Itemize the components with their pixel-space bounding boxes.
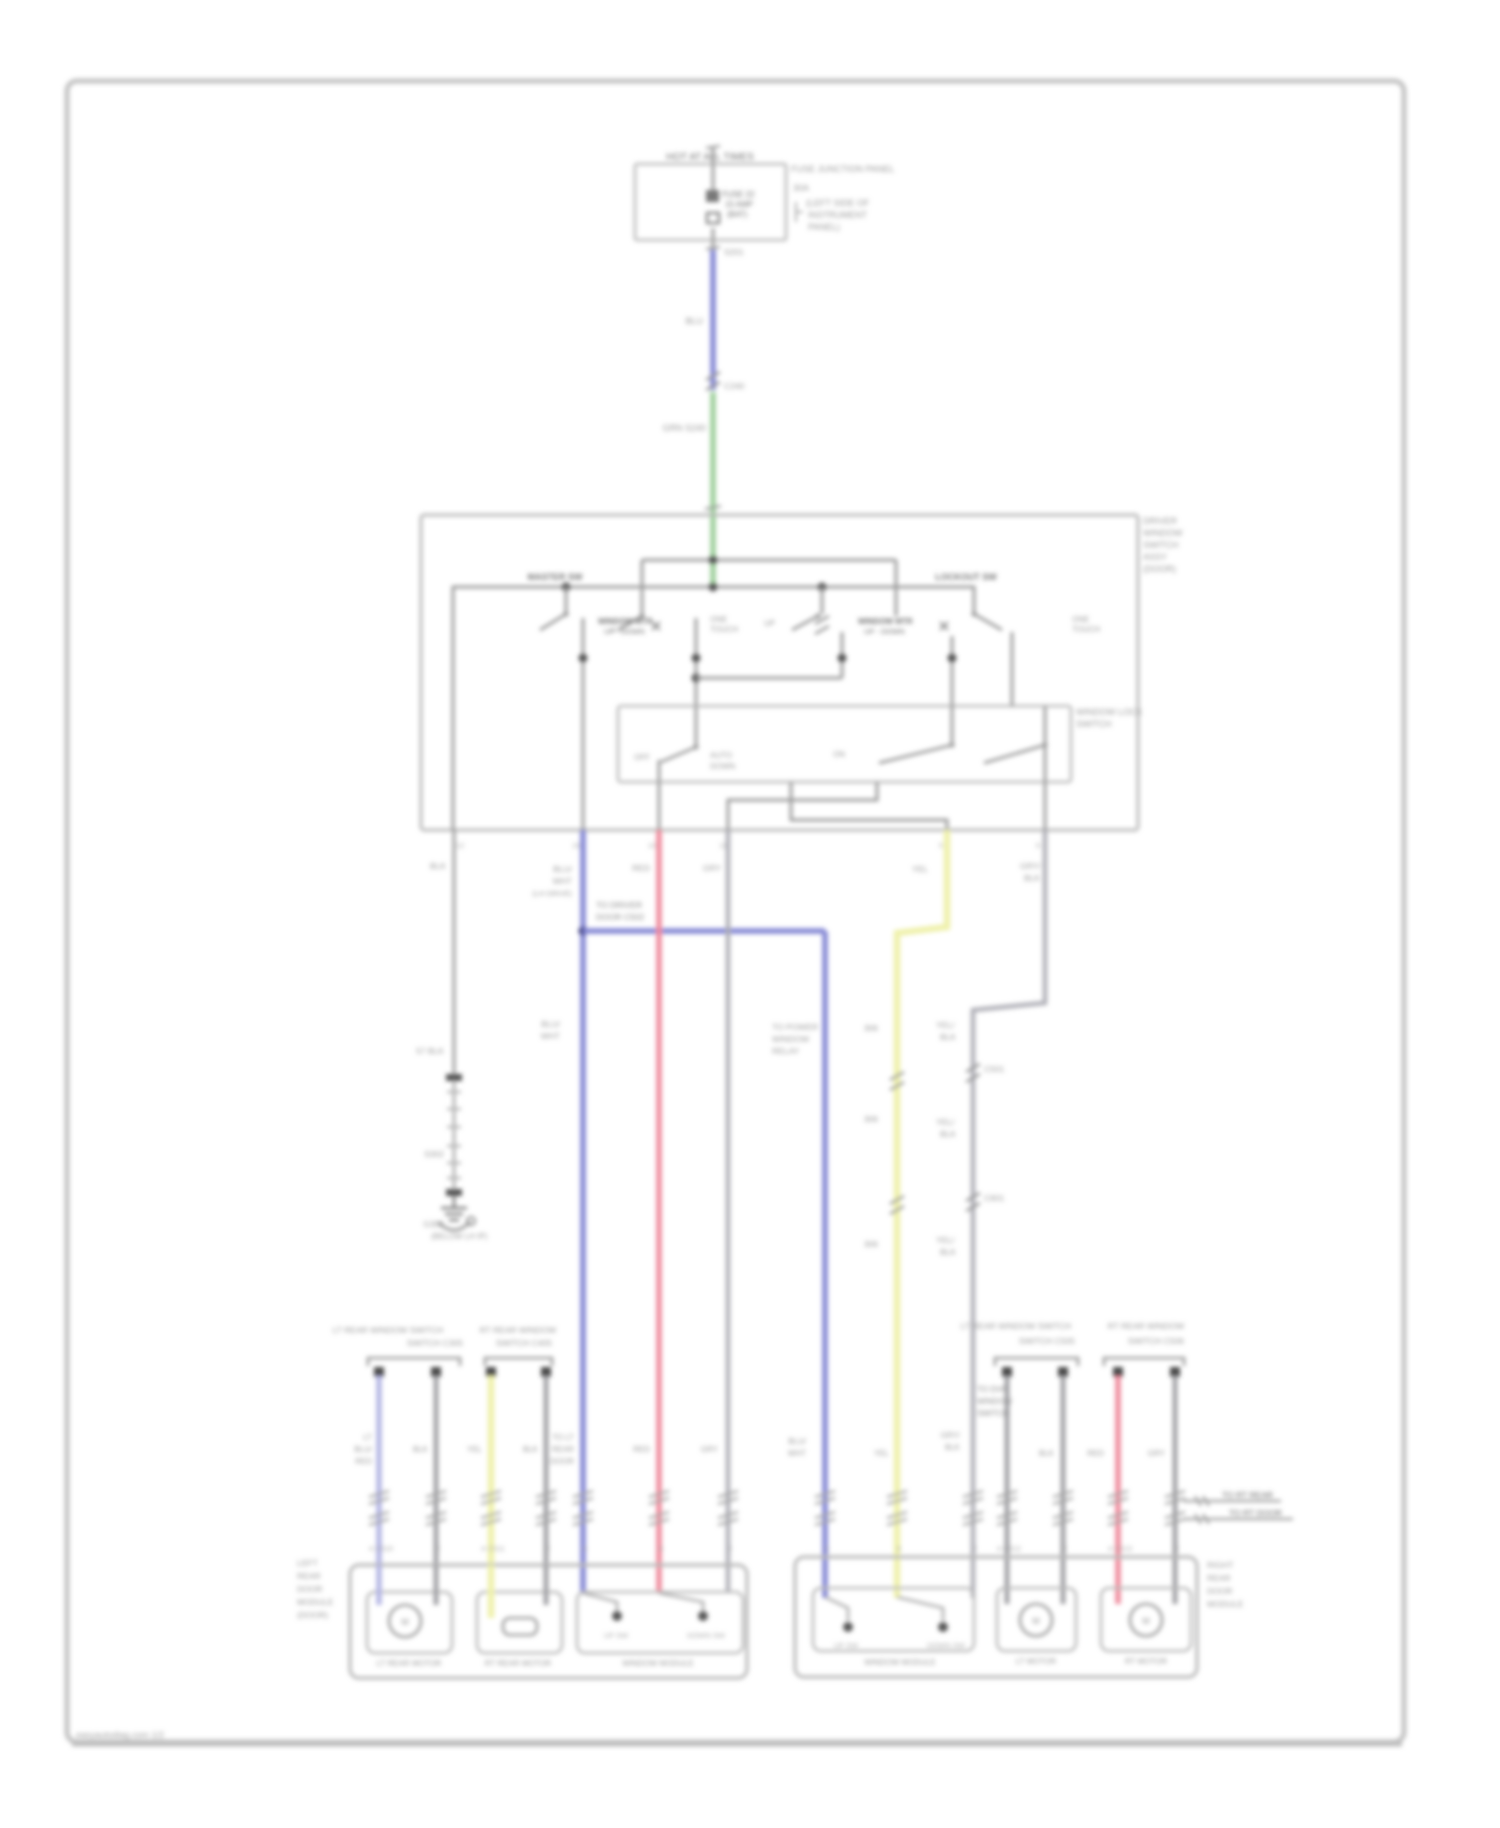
svg-text:WINDOW MODULE: WINDOW MODULE bbox=[864, 1658, 936, 1667]
svg-text:TO LT: TO LT bbox=[552, 1433, 574, 1442]
svg-text:RT REAR WINDOW: RT REAR WINDOW bbox=[480, 1325, 557, 1335]
svg-text:YEL: YEL bbox=[467, 1445, 483, 1454]
svg-text:DRIVER: DRIVER bbox=[1143, 516, 1178, 526]
svg-text:FUSE JUNCTION PANEL: FUSE JUNCTION PANEL bbox=[791, 164, 894, 174]
svg-text:LT: LT bbox=[363, 1433, 372, 1442]
svg-text:6: 6 bbox=[825, 1544, 829, 1553]
svg-text:TO DRIVER: TO DRIVER bbox=[596, 900, 642, 910]
svg-text:M: M bbox=[401, 1617, 409, 1627]
svg-text:TOUCH: TOUCH bbox=[710, 625, 739, 634]
svg-text:YEL: YEL bbox=[912, 864, 928, 874]
svg-text:M: M bbox=[1032, 1616, 1040, 1626]
svg-text:BLK: BLK bbox=[1039, 1449, 1055, 1458]
svg-text:BLK: BLK bbox=[1024, 873, 1040, 883]
svg-text:BLU: BLU bbox=[685, 316, 703, 326]
svg-text:RED: RED bbox=[355, 1457, 372, 1466]
svg-text:9: 9 bbox=[1036, 841, 1040, 850]
svg-text:11: 11 bbox=[719, 841, 727, 850]
svg-text:(LEFT SIDE OF: (LEFT SIDE OF bbox=[806, 198, 870, 208]
svg-text:DOOR C502: DOOR C502 bbox=[596, 912, 644, 922]
svg-text:TOUCH: TOUCH bbox=[1072, 625, 1101, 634]
svg-text:MODULE: MODULE bbox=[1207, 1599, 1244, 1609]
svg-text:WHT: WHT bbox=[788, 1449, 806, 1458]
svg-text:RT MOTOR: RT MOTOR bbox=[1125, 1657, 1167, 1666]
svg-text:LT MOTOR: LT MOTOR bbox=[1016, 1657, 1057, 1666]
svg-text:easyautodiag.com 1/2: easyautodiag.com 1/2 bbox=[76, 1730, 164, 1740]
svg-text:4 C511: 4 C511 bbox=[481, 1544, 505, 1553]
svg-text:2: 2 bbox=[1063, 1544, 1067, 1553]
svg-text:(LH DRIVE): (LH DRIVE) bbox=[532, 889, 572, 898]
svg-text:2: 2 bbox=[546, 1544, 550, 1553]
svg-text:UP SW: UP SW bbox=[834, 1641, 859, 1650]
svg-text:DOOR: DOOR bbox=[297, 1584, 323, 1594]
svg-text:DOOR: DOOR bbox=[550, 1457, 574, 1466]
svg-text:UP SW: UP SW bbox=[604, 1631, 629, 1640]
svg-text:FUSE 22: FUSE 22 bbox=[722, 190, 755, 199]
svg-text:SWITCH C305: SWITCH C305 bbox=[407, 1338, 463, 1348]
svg-text:YEL/: YEL/ bbox=[936, 1117, 955, 1127]
svg-text:LT REAR MOTOR: LT REAR MOTOR bbox=[377, 1659, 442, 1668]
svg-text:TO POWER: TO POWER bbox=[772, 1022, 818, 1032]
svg-text:(BAT): (BAT) bbox=[727, 210, 748, 219]
svg-text:PANEL): PANEL) bbox=[808, 222, 840, 232]
svg-text:BLK: BLK bbox=[945, 1443, 961, 1452]
svg-text:306: 306 bbox=[864, 1114, 878, 1124]
svg-text:UP - DOWN: UP - DOWN bbox=[604, 627, 645, 636]
svg-text:S302: S302 bbox=[424, 1149, 444, 1159]
svg-text:GRY/: GRY/ bbox=[1020, 861, 1041, 871]
svg-text:REAR: REAR bbox=[1207, 1573, 1231, 1583]
svg-text:BLK: BLK bbox=[940, 1032, 956, 1042]
svg-text:TO DVR: TO DVR bbox=[977, 1385, 1007, 1394]
svg-text:WINDOW: WINDOW bbox=[977, 1397, 1013, 1406]
svg-text:ASSY: ASSY bbox=[1143, 552, 1167, 562]
svg-text:BLK: BLK bbox=[940, 1129, 956, 1139]
svg-text:MODULE: MODULE bbox=[297, 1597, 334, 1607]
svg-text:2: 2 bbox=[728, 1544, 732, 1553]
svg-text:DOWN: DOWN bbox=[710, 762, 736, 771]
svg-text:LT REAR WINDOW SWITCH: LT REAR WINDOW SWITCH bbox=[961, 1321, 1072, 1331]
svg-text:WINDOW: WINDOW bbox=[1143, 528, 1183, 538]
svg-text:WHT: WHT bbox=[553, 876, 572, 886]
svg-text:BLU/: BLU/ bbox=[553, 864, 573, 874]
svg-text:2: 2 bbox=[436, 1544, 440, 1553]
svg-text:C601: C601 bbox=[984, 1193, 1005, 1203]
svg-text:RED: RED bbox=[1087, 1449, 1104, 1458]
svg-text:4 C510: 4 C510 bbox=[369, 1544, 393, 1553]
svg-text:GRY: GRY bbox=[701, 1445, 719, 1454]
svg-text:REAR: REAR bbox=[297, 1571, 321, 1581]
svg-text:DOWN SW: DOWN SW bbox=[927, 1641, 966, 1650]
svg-text:4 C513: 4 C513 bbox=[1108, 1544, 1132, 1553]
svg-text:RT REAR MOTOR: RT REAR MOTOR bbox=[485, 1659, 552, 1668]
svg-text:REAR: REAR bbox=[552, 1445, 574, 1454]
svg-text:ON: ON bbox=[833, 750, 845, 759]
svg-text:M: M bbox=[1142, 1616, 1150, 1626]
svg-text:RED: RED bbox=[632, 863, 650, 873]
svg-text:4 C512: 4 C512 bbox=[997, 1544, 1021, 1553]
svg-text:BLU/: BLU/ bbox=[788, 1437, 807, 1446]
svg-text:ONE: ONE bbox=[710, 615, 727, 624]
svg-text:BLK: BLK bbox=[523, 1445, 539, 1454]
svg-text:10: 10 bbox=[648, 841, 656, 850]
svg-text:SWITCH: SWITCH bbox=[1143, 540, 1179, 550]
svg-text:BLU/: BLU/ bbox=[541, 1019, 561, 1029]
svg-text:SWITCH: SWITCH bbox=[1076, 719, 1112, 729]
svg-text:(DOOR): (DOOR) bbox=[297, 1610, 328, 1620]
svg-text:TO RT REAR: TO RT REAR bbox=[1222, 1490, 1273, 1500]
svg-text:30A: 30A bbox=[793, 183, 809, 193]
svg-text:UP - DOWN: UP - DOWN bbox=[864, 627, 905, 636]
svg-text:15 AMP: 15 AMP bbox=[725, 200, 753, 209]
svg-text:16: 16 bbox=[572, 841, 580, 850]
svg-text:SWITCH C505: SWITCH C505 bbox=[1019, 1336, 1075, 1346]
svg-text:YEL: YEL bbox=[874, 1449, 890, 1458]
svg-text:RELAY: RELAY bbox=[772, 1046, 800, 1056]
svg-text:DOOR: DOOR bbox=[1207, 1586, 1233, 1596]
svg-text:RIGHT: RIGHT bbox=[1207, 1560, 1233, 1570]
svg-text:BLK: BLK bbox=[940, 1247, 956, 1257]
svg-text:SWITCH C506: SWITCH C506 bbox=[1128, 1336, 1184, 1346]
svg-text:UP: UP bbox=[764, 619, 775, 628]
svg-text:WINDOW LOCK: WINDOW LOCK bbox=[1076, 707, 1143, 717]
svg-text:INSTRUMENT: INSTRUMENT bbox=[808, 210, 867, 220]
svg-text:6: 6 bbox=[583, 1544, 587, 1553]
svg-text:WINDOW MODULE: WINDOW MODULE bbox=[622, 1659, 694, 1668]
svg-text:306: 306 bbox=[864, 1239, 878, 1249]
svg-text:GRY/: GRY/ bbox=[941, 1431, 961, 1440]
svg-text:AUTO: AUTO bbox=[710, 751, 732, 760]
svg-text:DOWN SW: DOWN SW bbox=[687, 1631, 726, 1640]
svg-text:G302: G302 bbox=[423, 1219, 444, 1229]
svg-text:S201: S201 bbox=[724, 247, 744, 257]
svg-text:(BELOW LH IP): (BELOW LH IP) bbox=[431, 1232, 488, 1241]
svg-text:WINDOW MTR: WINDOW MTR bbox=[598, 617, 653, 626]
svg-text:TO RT DOOR: TO RT DOOR bbox=[1229, 1508, 1282, 1518]
svg-text:12: 12 bbox=[456, 841, 464, 850]
svg-text:SWITCH: SWITCH bbox=[977, 1409, 1009, 1418]
svg-text:YEL/: YEL/ bbox=[936, 1235, 955, 1245]
svg-text:ONE: ONE bbox=[1072, 615, 1089, 624]
svg-text:MASTER SW: MASTER SW bbox=[528, 572, 584, 582]
svg-text:GRN S240: GRN S240 bbox=[662, 423, 706, 433]
svg-text:BLU/: BLU/ bbox=[354, 1445, 373, 1454]
svg-text:RED: RED bbox=[633, 1445, 650, 1454]
svg-text:OFF: OFF bbox=[634, 753, 650, 762]
svg-text:306: 306 bbox=[864, 1023, 878, 1033]
svg-text:57 BLK: 57 BLK bbox=[416, 1046, 444, 1056]
svg-text:HOT AT ALL TIMES: HOT AT ALL TIMES bbox=[666, 152, 754, 163]
svg-text:BLK: BLK bbox=[430, 861, 446, 871]
svg-text:C240: C240 bbox=[724, 381, 745, 391]
svg-text:WINDOW: WINDOW bbox=[772, 1034, 809, 1044]
svg-text:YEL/: YEL/ bbox=[936, 1020, 955, 1030]
svg-text:LOCKOUT SW: LOCKOUT SW bbox=[935, 572, 997, 582]
svg-text:GRY: GRY bbox=[1148, 1449, 1166, 1458]
svg-text:WINDOW MTR: WINDOW MTR bbox=[858, 617, 913, 626]
svg-text:C501: C501 bbox=[984, 1064, 1005, 1074]
svg-text:2: 2 bbox=[973, 1544, 977, 1553]
svg-text:WHT: WHT bbox=[541, 1031, 560, 1041]
svg-text:(DOOR): (DOOR) bbox=[1143, 564, 1176, 574]
svg-text:SWITCH C405: SWITCH C405 bbox=[496, 1338, 552, 1348]
svg-text:LEFT: LEFT bbox=[297, 1558, 318, 1568]
svg-text:BLK: BLK bbox=[413, 1445, 429, 1454]
svg-text:5: 5 bbox=[939, 841, 943, 850]
svg-text:8: 8 bbox=[897, 1544, 901, 1553]
svg-text:8: 8 bbox=[659, 1544, 663, 1553]
svg-text:RT REAR WINDOW: RT REAR WINDOW bbox=[1108, 1321, 1185, 1331]
svg-text:2: 2 bbox=[1175, 1544, 1179, 1553]
svg-text:GRY: GRY bbox=[703, 863, 722, 873]
svg-text:LT REAR WINDOW SWITCH: LT REAR WINDOW SWITCH bbox=[333, 1325, 444, 1335]
